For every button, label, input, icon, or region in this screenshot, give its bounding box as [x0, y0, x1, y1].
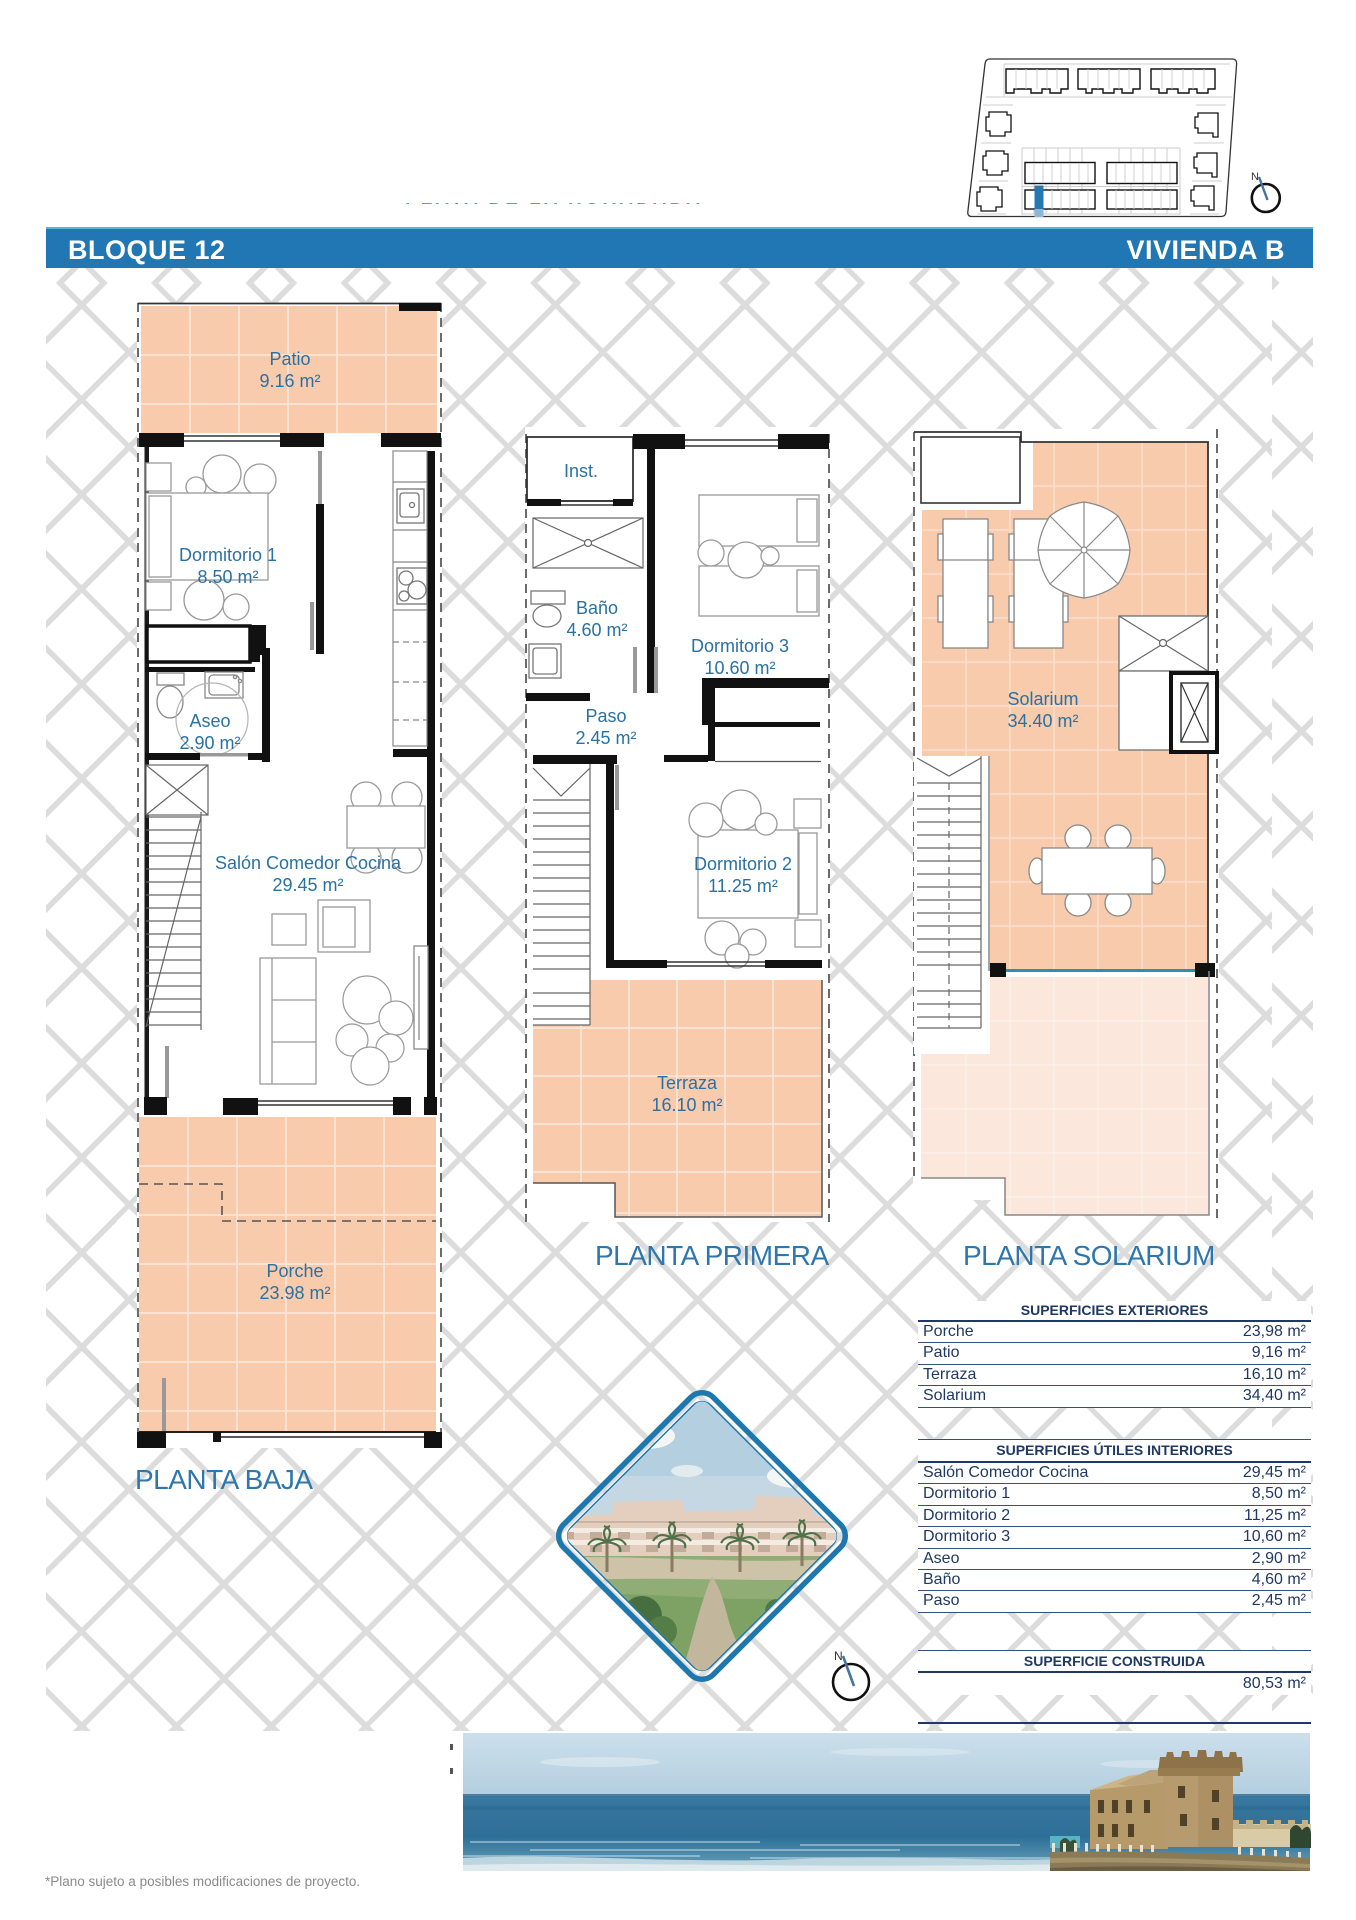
svg-text:N: N: [834, 1649, 843, 1663]
svg-text:N: N: [1251, 171, 1259, 183]
